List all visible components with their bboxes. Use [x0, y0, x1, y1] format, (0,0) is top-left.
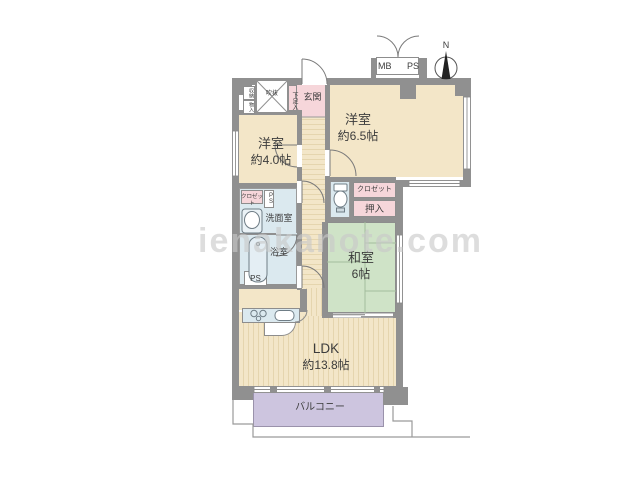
watermark: ienakanote.com	[198, 222, 488, 261]
kitchen-counter	[242, 308, 300, 323]
wall-west40-bottom	[239, 183, 302, 188]
wall-right-upper	[463, 85, 471, 182]
japanese-room-size: 6帖	[325, 267, 397, 281]
ldk-door-opening	[297, 266, 302, 288]
west-room-65-name: 洋室	[322, 112, 394, 128]
closet-west65-label: クロゼット	[353, 186, 396, 194]
shoe-cabinet-label: 下足入	[288, 87, 297, 114]
wall-west65-bottom	[330, 177, 396, 182]
wall-balcony-left-block	[232, 386, 253, 400]
wall-right-lower	[396, 180, 403, 393]
storage-lower-label: 物入	[244, 101, 254, 113]
meter-box-ps-label: PS	[401, 61, 419, 72]
west-room-65-size: 約6.5帖	[322, 129, 394, 143]
senmen-door-opening	[297, 181, 302, 203]
compass-n-label: N	[438, 40, 454, 51]
ps-shaft-label: PS	[265, 191, 274, 207]
storage-upper-label: 収納	[244, 87, 254, 99]
ldk-size: 約13.8帖	[280, 358, 372, 372]
wall-mb-pillar	[400, 85, 416, 99]
kitchen-floor	[239, 289, 300, 310]
closet-west40-label: クロゼット	[241, 194, 263, 207]
wall-balcony-right-block	[383, 387, 408, 405]
west65-door-opening	[325, 150, 330, 176]
floor-plan: 洋室 約6.5帖 洋室 約4.0帖 和室 6帖 LDK 約13.8帖 バルコニー…	[0, 0, 640, 480]
wall-kitchen-right	[300, 289, 307, 312]
west-room-40-name: 洋室	[235, 136, 307, 152]
wall-closet-divider	[353, 198, 396, 200]
ldk-name: LDK	[280, 341, 372, 357]
entrance-label: 玄関	[299, 92, 326, 103]
wall-bottom	[232, 386, 403, 393]
entrance-opening	[302, 78, 327, 85]
wall-washitsu-bottom	[322, 313, 396, 318]
balcony-label: バルコニー	[270, 402, 370, 414]
void-shaft-label: 吹抜	[256, 91, 288, 98]
oshiire-label: 押入	[353, 204, 396, 215]
toilet-floor	[330, 177, 350, 222]
west-room-40-size: 約4.0帖	[235, 153, 307, 167]
wall-step-bottom-west65	[395, 180, 471, 187]
meter-box-mb-label: MB	[378, 61, 396, 72]
wall-mb-right	[419, 58, 427, 78]
ps-bottom-label: PS	[244, 274, 267, 284]
